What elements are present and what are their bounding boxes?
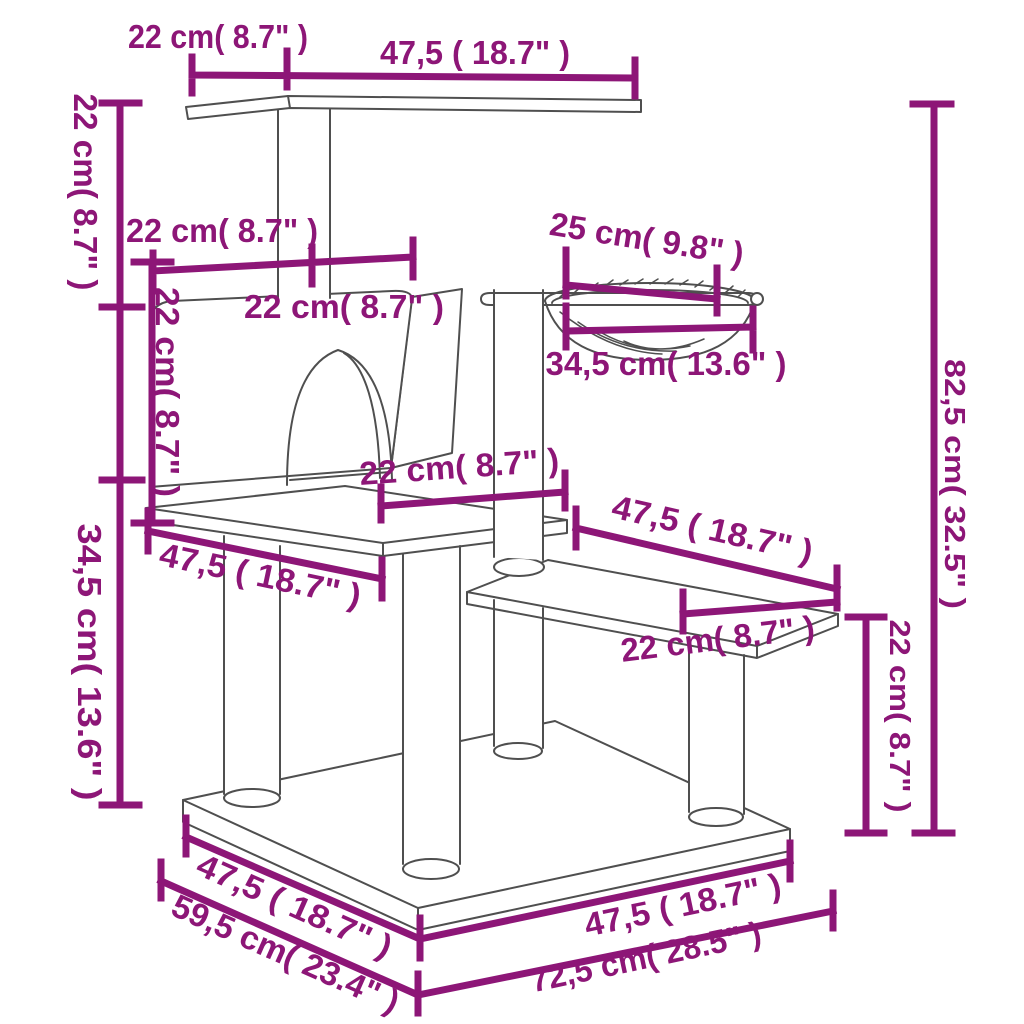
dim-label-top-platform-width: 47,5 ( 18.7" ) [380,34,570,71]
dimension-diagram-page: 22 cm( 8.7" ) 47,5 ( 18.7" ) 22 cm( 8.7"… [0,0,1024,1024]
cat-tree-dimension-diagram: 22 cm( 8.7" ) 47,5 ( 18.7" ) 22 cm( 8.7"… [0,0,1024,1024]
top-platform [186,96,641,119]
post-back-middle [494,290,543,560]
dim-top-width: 22 cm( 8.7" ) 47,5 ( 18.7" ) [128,18,635,96]
dim-house-height: 22 cm( 8.7" ) [134,262,186,523]
post-back-lower [494,600,543,759]
dim-label-house-height: 22 cm( 8.7" ) [149,287,186,497]
dim-label-top-drop-height: 22 cm( 8.7" ) [67,94,104,291]
dim-left-heights: 22 cm( 8.7" ) 34,5 cm( 13.6" ) [67,94,142,806]
post-left-upper [278,106,330,303]
dim-label-lower-height: 34,5 cm( 13.6" ) [71,524,108,801]
dim-total-height: 82,5 cm( 32.5" ) [913,104,970,833]
dim-label-house-row-left: 22 cm( 8.7" ) [126,212,318,249]
dim-label-house-row-right: 22 cm( 8.7" ) [244,288,444,325]
dim-label-step-height: 22 cm( 8.7" ) [883,620,915,813]
dim-step-height: 22 cm( 8.7" ) [848,617,915,833]
dim-label-total-height: 82,5 cm( 32.5" ) [938,359,970,609]
dim-label-hammock-outer: 34,5 cm( 13.6" ) [546,345,787,382]
dim-label-hammock-inner: 25 cm( 9.8" ) [547,205,746,272]
post-center-lower [403,546,460,879]
dim-label-top-post-inset: 22 cm( 8.7" ) [128,18,308,55]
post-collar [494,558,544,576]
post-step-support [689,645,744,826]
